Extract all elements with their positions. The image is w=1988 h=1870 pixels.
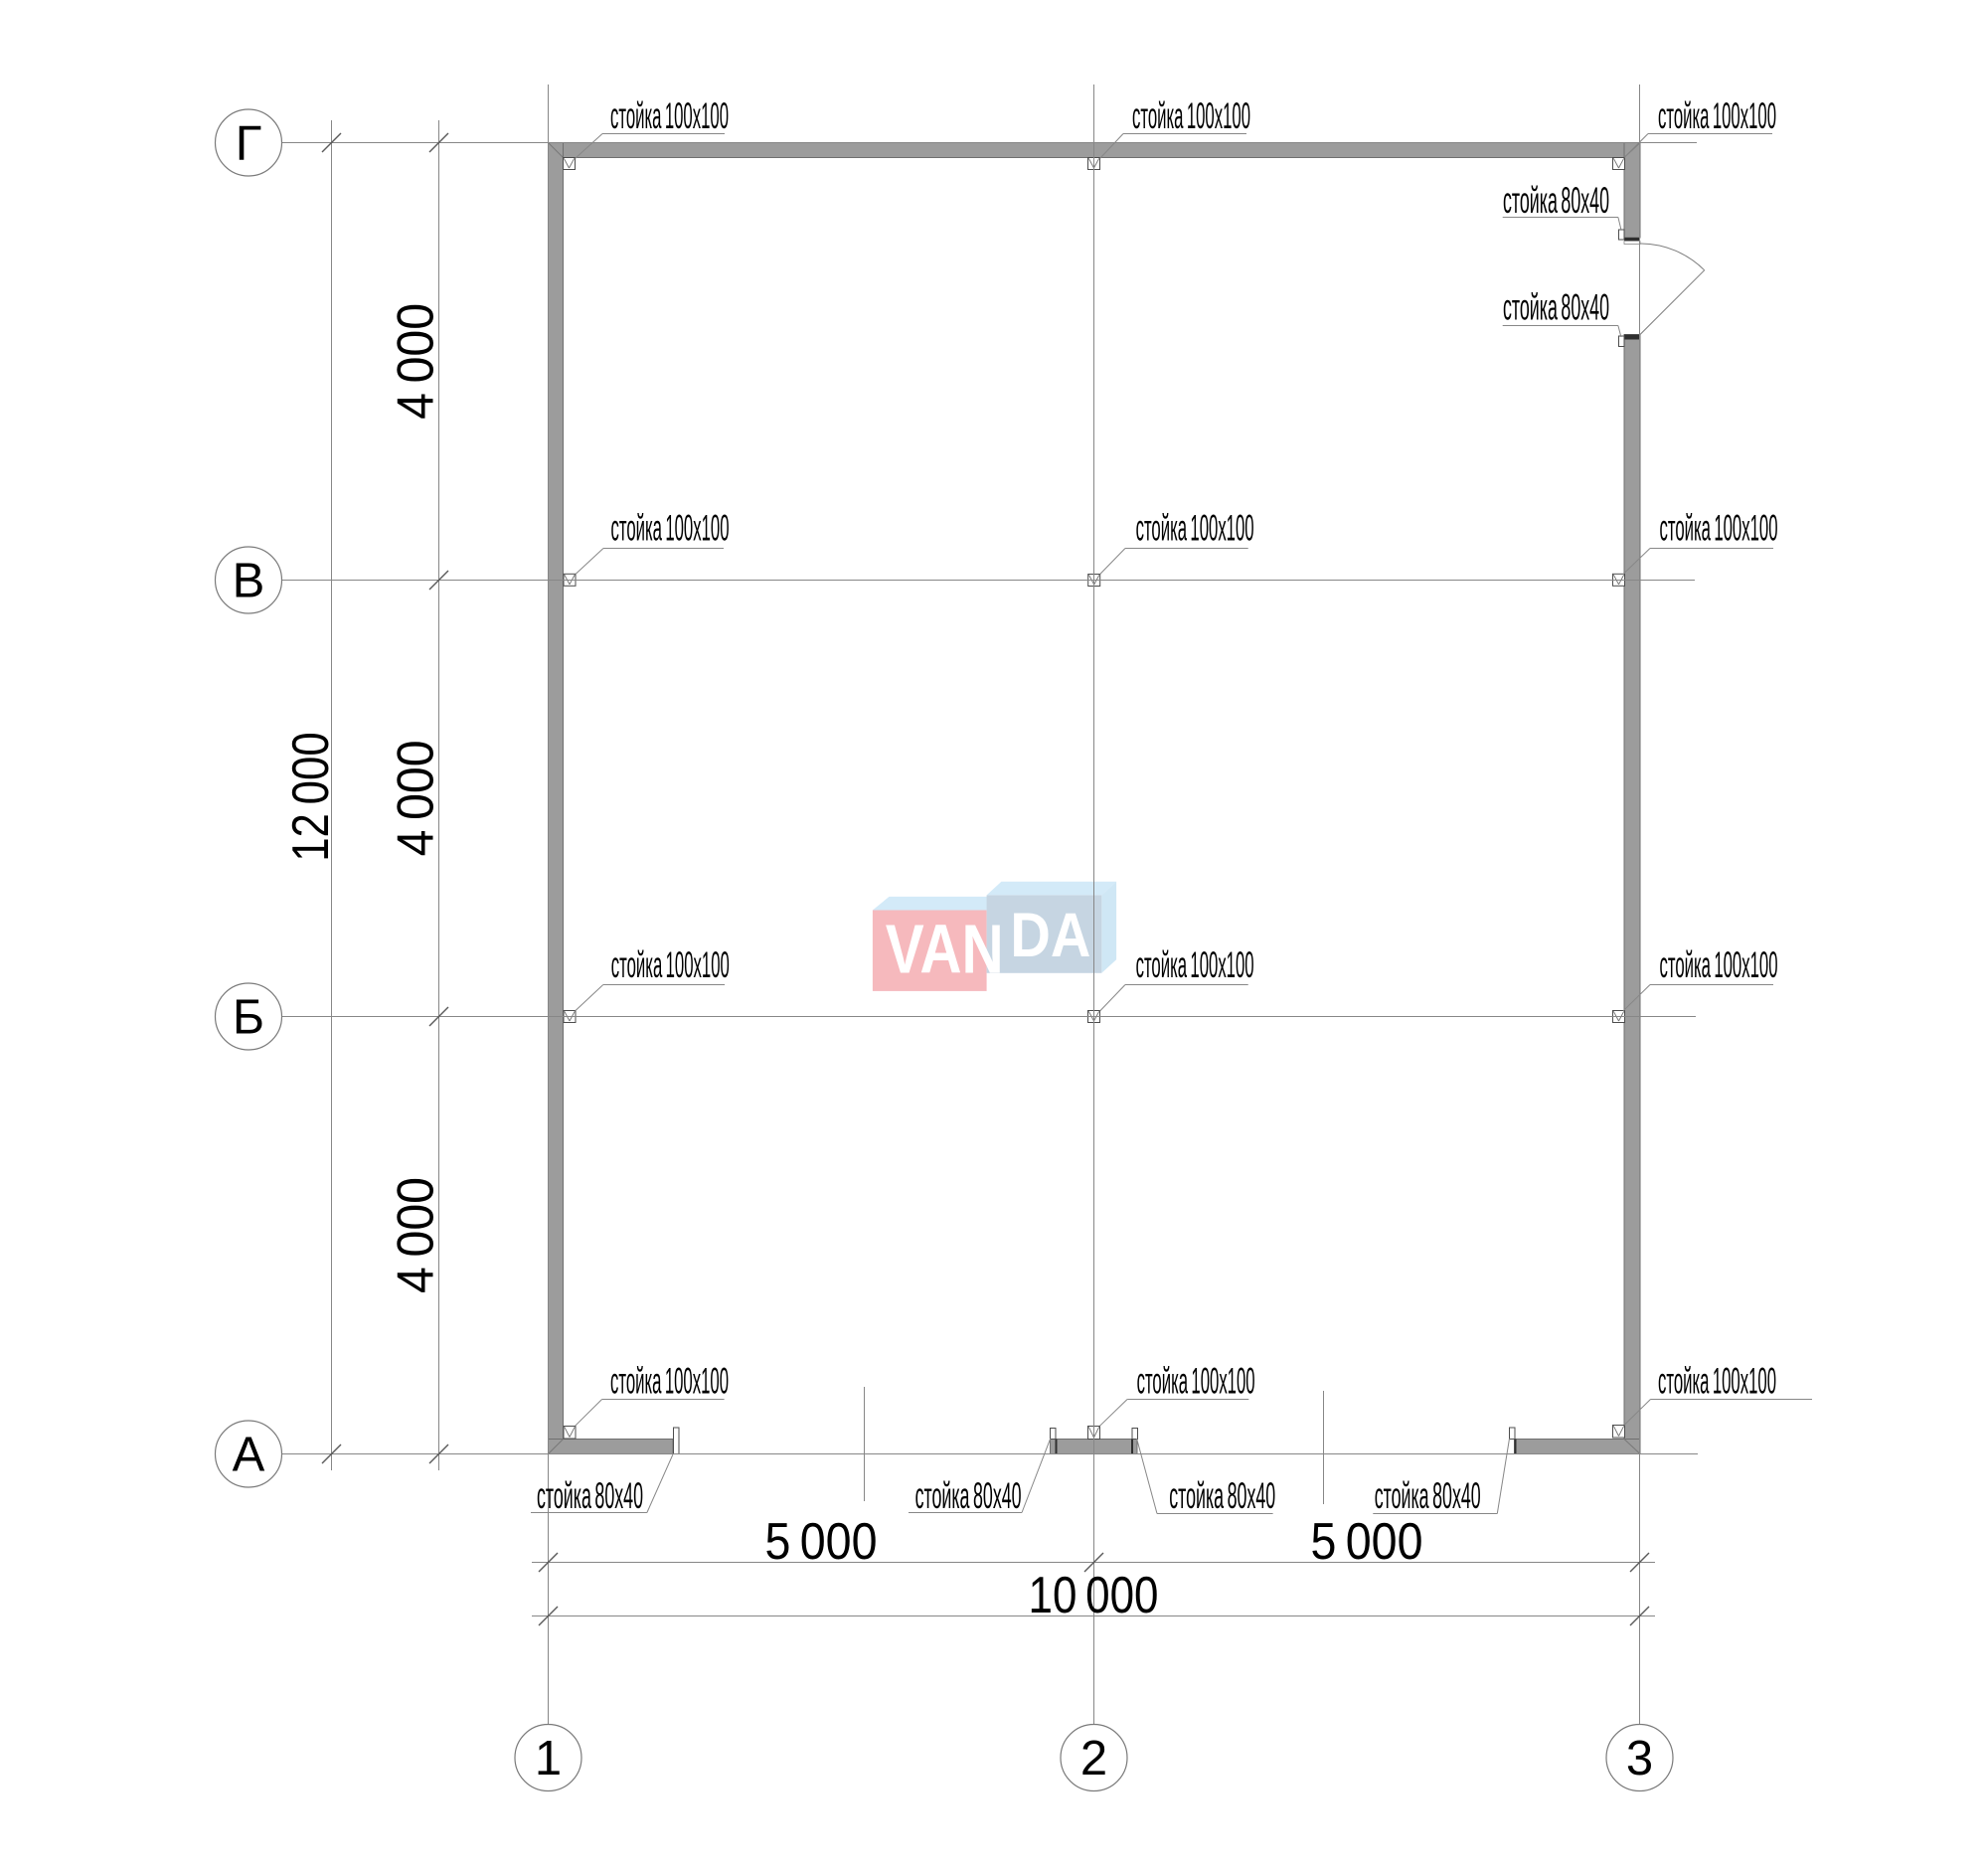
svg-text:4 000: 4 000 — [388, 1177, 445, 1293]
svg-text:10 000: 10 000 — [1029, 1567, 1159, 1624]
svg-text:В: В — [233, 555, 265, 608]
svg-text:стойка 100х100: стойка 100х100 — [611, 944, 730, 985]
svg-text:стойка 100х100: стойка 100х100 — [1658, 95, 1776, 136]
svg-text:стойка 100х100: стойка 100х100 — [610, 1361, 729, 1402]
svg-text:стойка 100х100: стойка 100х100 — [611, 508, 730, 549]
svg-text:стойка 100х100: стойка 100х100 — [1136, 944, 1254, 985]
svg-text:DA: DA — [1010, 901, 1090, 970]
svg-text:стойка 80х40: стойка 80х40 — [1503, 287, 1609, 328]
svg-text:А: А — [233, 1429, 265, 1482]
svg-text:стойка 100х100: стойка 100х100 — [1132, 95, 1250, 136]
svg-text:Б: Б — [233, 991, 264, 1045]
svg-text:4 000: 4 000 — [388, 303, 445, 420]
svg-text:стойка 100х100: стойка 100х100 — [1658, 1361, 1776, 1402]
svg-text:стойка 80х40: стойка 80х40 — [1169, 1475, 1275, 1516]
svg-text:стойка 100х100: стойка 100х100 — [1660, 508, 1778, 549]
svg-text:12 000: 12 000 — [282, 732, 340, 862]
svg-text:VAN: VAN — [886, 911, 1004, 988]
svg-text:3: 3 — [1626, 1732, 1653, 1785]
svg-text:4 000: 4 000 — [388, 740, 445, 856]
svg-text:Г: Г — [236, 117, 262, 171]
svg-text:стойка 100х100: стойка 100х100 — [610, 95, 729, 136]
svg-text:стойка 80х40: стойка 80х40 — [1503, 180, 1609, 221]
svg-text:стойка 100х100: стойка 100х100 — [1137, 1361, 1255, 1402]
svg-text:2: 2 — [1080, 1732, 1107, 1785]
svg-text:стойка 80х40: стойка 80х40 — [537, 1475, 643, 1516]
svg-text:5 000: 5 000 — [1311, 1513, 1423, 1571]
svg-text:стойка 80х40: стойка 80х40 — [1375, 1475, 1481, 1516]
svg-text:стойка 100х100: стойка 100х100 — [1136, 508, 1254, 549]
svg-text:5 000: 5 000 — [765, 1513, 878, 1571]
svg-text:стойка 80х40: стойка 80х40 — [915, 1475, 1022, 1516]
svg-text:стойка 100х100: стойка 100х100 — [1660, 944, 1778, 985]
svg-text:1: 1 — [535, 1732, 562, 1785]
